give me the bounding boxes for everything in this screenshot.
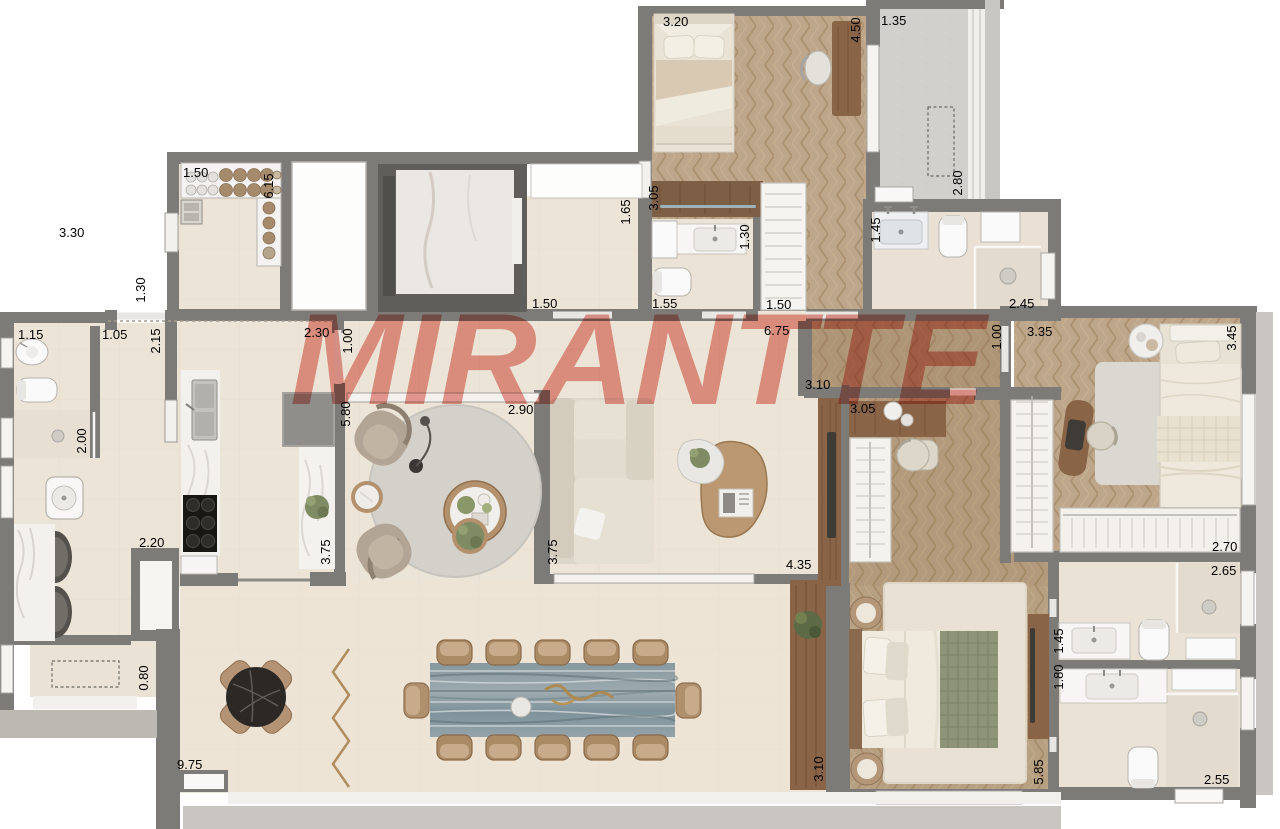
svg-text:1.50: 1.50 — [183, 165, 208, 180]
svg-text:2.65: 2.65 — [1211, 563, 1236, 578]
svg-text:2.80: 2.80 — [950, 170, 965, 195]
svg-text:3.10: 3.10 — [811, 756, 826, 781]
svg-text:1.05: 1.05 — [102, 327, 127, 342]
svg-text:1.00: 1.00 — [989, 324, 1004, 349]
svg-text:3.20: 3.20 — [663, 14, 688, 29]
svg-text:1.35: 1.35 — [881, 13, 906, 28]
svg-text:3.75: 3.75 — [545, 539, 560, 564]
svg-text:2.20: 2.20 — [139, 535, 164, 550]
svg-text:1.45: 1.45 — [1051, 628, 1066, 653]
svg-text:3.75: 3.75 — [318, 539, 333, 564]
svg-text:3.35: 3.35 — [1027, 324, 1052, 339]
svg-text:1.30: 1.30 — [737, 224, 752, 249]
svg-text:2.00: 2.00 — [74, 428, 89, 453]
svg-text:2.70: 2.70 — [1212, 539, 1237, 554]
svg-text:5.85: 5.85 — [1031, 759, 1046, 784]
svg-text:MIRANTTE: MIRANTTE — [290, 286, 989, 432]
svg-text:1.65: 1.65 — [618, 199, 633, 224]
svg-text:9.75: 9.75 — [177, 757, 202, 772]
svg-text:1.15: 1.15 — [18, 327, 43, 342]
svg-text:3.45: 3.45 — [1224, 325, 1239, 350]
svg-text:6.15: 6.15 — [261, 173, 276, 198]
svg-text:3.05: 3.05 — [646, 185, 661, 210]
svg-text:1.30: 1.30 — [133, 277, 148, 302]
svg-text:2.55: 2.55 — [1204, 772, 1229, 787]
svg-text:1.80: 1.80 — [1051, 664, 1066, 689]
svg-text:2.45: 2.45 — [1009, 296, 1034, 311]
svg-text:4.35: 4.35 — [786, 557, 811, 572]
svg-text:1.45: 1.45 — [868, 217, 883, 242]
svg-text:3.30: 3.30 — [59, 225, 84, 240]
svg-text:4.50: 4.50 — [848, 17, 863, 42]
svg-text:2.15: 2.15 — [148, 328, 163, 353]
svg-text:0.80: 0.80 — [136, 665, 151, 690]
